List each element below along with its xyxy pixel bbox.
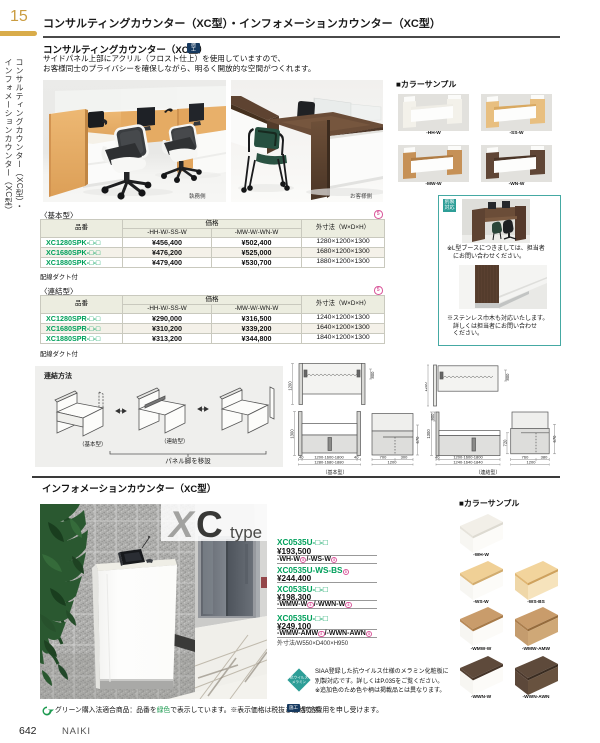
svg-text:300: 300	[401, 455, 408, 460]
svg-text:（基本型）: （基本型）	[322, 469, 347, 476]
svg-text:（連結型）: （連結型）	[161, 437, 189, 445]
svg-text:800: 800	[505, 373, 510, 381]
svg-text:670: 670	[552, 435, 557, 443]
svg-text:執務側: 執務側	[189, 192, 206, 200]
svg-text:40: 40	[299, 455, 304, 460]
svg-text:パネル脚を移設: パネル脚を移設	[165, 456, 211, 465]
svg-text:900: 900	[430, 413, 435, 421]
svg-text:（連結型）: （連結型）	[475, 469, 500, 476]
svg-text:メラミン: メラミン	[292, 679, 307, 684]
svg-text:連結方法: 連結方法	[44, 371, 72, 380]
svg-text:1300: 1300	[290, 429, 295, 439]
svg-text:お客様側: お客様側	[350, 192, 373, 200]
svg-text:1200: 1200	[527, 460, 537, 465]
svg-text:380: 380	[541, 455, 548, 460]
svg-text:type: type	[230, 523, 262, 542]
svg-text:700: 700	[380, 455, 387, 460]
svg-text:1300: 1300	[426, 429, 431, 439]
svg-text:1200: 1200	[425, 382, 428, 392]
svg-text:720: 720	[503, 439, 508, 447]
svg-text:（基本型）: （基本型）	[79, 440, 107, 448]
svg-text:800: 800	[370, 371, 375, 379]
svg-text:40: 40	[354, 455, 359, 460]
svg-text:1200: 1200	[288, 381, 293, 391]
svg-text:1200: 1200	[388, 460, 398, 465]
svg-text:40: 40	[435, 455, 440, 460]
svg-text:1240·1640·1840: 1240·1640·1840	[453, 460, 483, 465]
svg-text:抗ウイルス: 抗ウイルス	[290, 675, 308, 680]
svg-text:C: C	[196, 504, 222, 545]
svg-text:670: 670	[415, 436, 420, 444]
svg-text:1280·1680·1880: 1280·1680·1880	[314, 460, 344, 465]
